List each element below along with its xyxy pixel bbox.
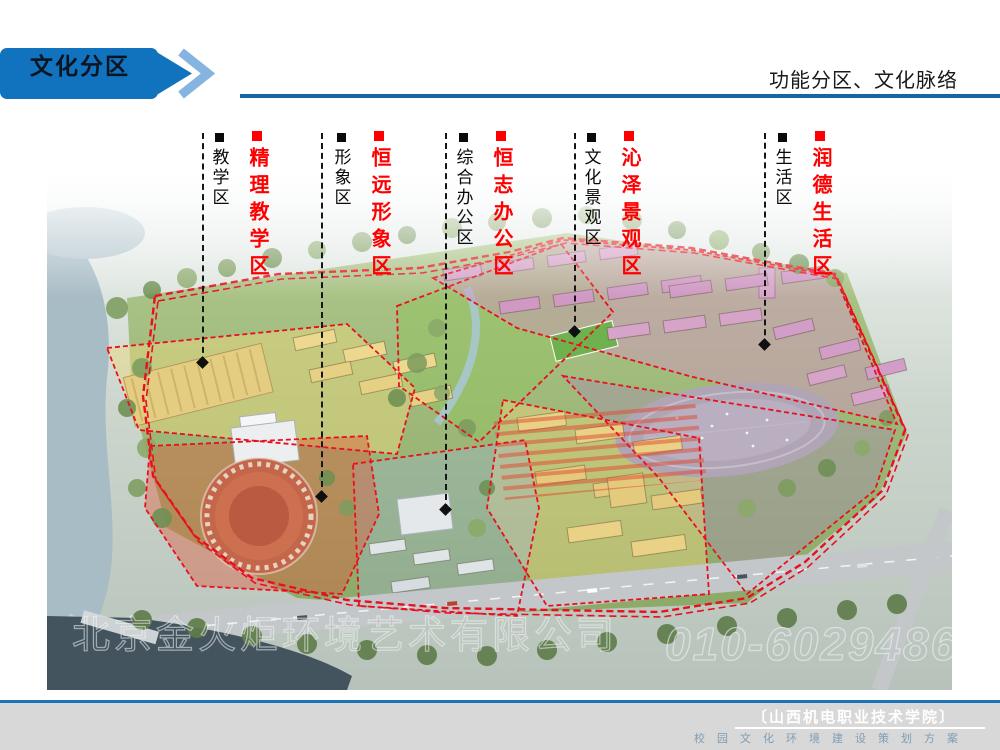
black-square-bullet-icon [337, 133, 346, 142]
brand-text: 恒志办公区 [491, 147, 511, 282]
black-square-bullet-icon [215, 133, 224, 142]
footer-subtitle: 校园文化环境建设策划方案 [694, 730, 970, 746]
page-title: 文化分区 [0, 47, 160, 99]
red-square-bullet-icon [496, 131, 506, 141]
header-subtitle: 功能分区、文化脉络 [769, 64, 958, 93]
brand-text: 沁泽景观区 [619, 147, 639, 282]
category-label: 教学区 [204, 133, 234, 208]
leader-line [445, 133, 447, 510]
brand-label: 精理教学区 [242, 131, 272, 282]
category-label: 文化景观区 [576, 133, 606, 248]
category-text: 教学区 [211, 148, 228, 208]
leader-line [321, 133, 323, 497]
brand-label: 恒志办公区 [486, 131, 516, 282]
category-label: 生活区 [767, 133, 797, 208]
brand-label: 恒远形象区 [364, 131, 394, 282]
brand-text: 润德生活区 [810, 147, 830, 282]
footer-institution: 〔山西机电职业技术学院〕 [752, 706, 956, 727]
header-rule [240, 94, 1000, 98]
watermark-company: 北京金火炬环境艺术有限公司 [72, 615, 618, 657]
brand-label: 沁泽景观区 [614, 131, 644, 282]
category-label: 综合办公区 [448, 133, 478, 248]
black-square-bullet-icon [459, 133, 468, 142]
leader-line [764, 133, 766, 345]
category-text: 生活区 [774, 148, 791, 208]
footer-underline [735, 727, 985, 729]
red-square-bullet-icon [374, 131, 384, 141]
black-square-bullet-icon [587, 133, 596, 142]
slide-page: 文化分区 功能分区、文化脉络 [0, 0, 1000, 750]
brand-text: 恒远形象区 [369, 147, 389, 282]
category-text: 文化景观区 [583, 148, 600, 248]
category-text: 形象区 [333, 148, 350, 208]
watermark-phone: 010-60294863 [665, 618, 952, 670]
category-text: 综合办公区 [455, 148, 472, 248]
brand-label: 润德生活区 [805, 131, 835, 282]
red-square-bullet-icon [624, 131, 634, 141]
red-square-bullet-icon [252, 131, 262, 141]
brand-text: 精理教学区 [247, 147, 267, 282]
black-square-bullet-icon [778, 133, 787, 142]
red-square-bullet-icon [815, 131, 825, 141]
category-label: 形象区 [326, 133, 356, 208]
